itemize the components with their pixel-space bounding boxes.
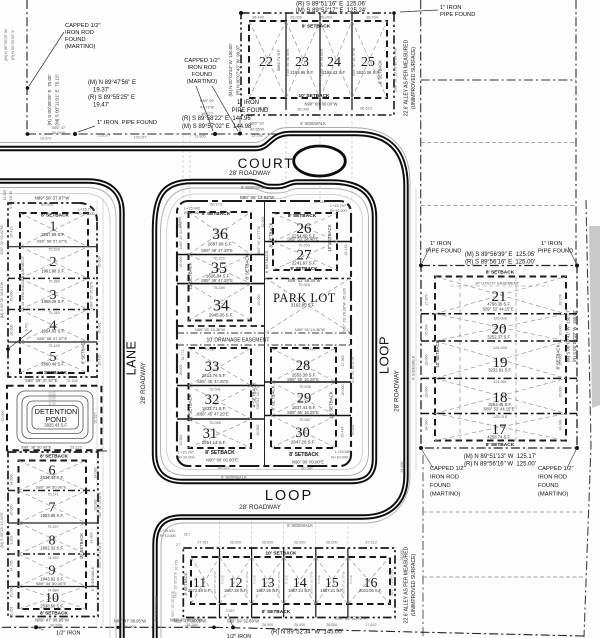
svg-text:26.000: 26.000 bbox=[179, 365, 183, 376]
svg-text:3232.91 S.F.: 3232.91 S.F. bbox=[488, 367, 512, 372]
svg-text:10' SETBACK: 10' SETBACK bbox=[329, 391, 334, 419]
svg-text:(R) N 00°00'00" E: (R) N 00°00'00" E bbox=[11, 30, 15, 60]
svg-text:L+15.641: L+15.641 bbox=[160, 529, 175, 533]
svg-text:124.943: 124.943 bbox=[493, 346, 507, 350]
svg-text:8' SETBACK: 8' SETBACK bbox=[269, 222, 274, 247]
svg-text:26.000: 26.000 bbox=[262, 623, 273, 627]
svg-text:2198.43 S.F.: 2198.43 S.F. bbox=[322, 70, 346, 75]
svg-text:S00° 02' 00.62"W: S00° 02' 00.62"W bbox=[0, 225, 4, 255]
svg-text:28' ROADWAY: 28' ROADWAY bbox=[239, 504, 282, 511]
svg-text:75.157: 75.157 bbox=[47, 525, 58, 529]
svg-text:25.429: 25.429 bbox=[10, 227, 14, 238]
svg-text:(M) S 89°56'39" E 125.05': (M) S 89°56'39" E 125.05' bbox=[465, 252, 536, 258]
svg-text:41.71'W: 41.71'W bbox=[200, 106, 214, 110]
svg-text:36: 36 bbox=[212, 226, 228, 243]
svg-text:L+15.942: L+15.942 bbox=[184, 207, 200, 211]
svg-text:36.794: 36.794 bbox=[366, 16, 378, 20]
svg-text:8' SETBACK: 8' SETBACK bbox=[40, 454, 68, 459]
svg-text:71.619: 71.619 bbox=[253, 575, 257, 585]
svg-text:26.000: 26.000 bbox=[98, 257, 102, 268]
svg-text:N89° 55' 15.36"W: N89° 55' 15.36"W bbox=[195, 328, 225, 332]
svg-text:9.203: 9.203 bbox=[10, 536, 14, 545]
svg-text:S00° 07' 20.70"W: S00° 07' 20.70"W bbox=[352, 47, 356, 76]
svg-text:2620.06 S.F.: 2620.06 S.F. bbox=[356, 70, 380, 75]
svg-text:74.880: 74.880 bbox=[47, 589, 58, 593]
svg-text:27.411: 27.411 bbox=[197, 541, 208, 545]
svg-text:N89° 35' 35.52"E: N89° 35' 35.52"E bbox=[90, 281, 94, 309]
svg-text:8' SETBACK: 8' SETBACK bbox=[205, 450, 235, 456]
svg-text:3252.37 S.F.: 3252.37 S.F. bbox=[487, 334, 511, 339]
svg-text:26.000: 26.000 bbox=[10, 587, 14, 598]
svg-text:LOOP: LOOP bbox=[377, 336, 392, 374]
svg-text:65.656: 65.656 bbox=[41, 201, 53, 206]
svg-text:19.905: 19.905 bbox=[195, 135, 206, 139]
svg-text:10' SETBACK: 10' SETBACK bbox=[435, 340, 440, 368]
svg-text:1867.24 S.F.: 1867.24 S.F. bbox=[288, 588, 311, 593]
svg-text:IRON ROD: IRON ROD bbox=[188, 65, 217, 71]
svg-text:N89° 35' 35.52"E: N89° 35' 35.52"E bbox=[98, 491, 102, 518]
svg-text:(R) S 89°58'22" E 144.96': (R) S 89°58'22" E 144.96' bbox=[182, 116, 252, 122]
svg-text:125.077: 125.077 bbox=[134, 136, 147, 140]
svg-text:1" IRON: 1" IRON bbox=[541, 241, 562, 247]
svg-text:10' SETBACK: 10' SETBACK bbox=[188, 394, 193, 422]
svg-text:1" IRON: 1" IRON bbox=[237, 100, 259, 106]
svg-text:S00°07' 20.70"W: S00°07' 20.70"W bbox=[390, 569, 394, 595]
svg-text:S00°07' 20.70"W: S00°07' 20.70"W bbox=[213, 571, 217, 594]
svg-text:75.128: 75.128 bbox=[48, 344, 59, 348]
svg-text:N89° 47' 08.95"W: N89° 47' 08.95"W bbox=[174, 619, 206, 624]
svg-text:2613.76 S.F.: 2613.76 S.F. bbox=[202, 373, 226, 378]
svg-text:L+15.773: L+15.773 bbox=[78, 208, 94, 212]
svg-text:S89° 47': S89° 47' bbox=[52, 126, 66, 130]
svg-text:N89° 56' 14.63"W: N89° 56' 14.63"W bbox=[240, 195, 276, 200]
svg-text:N89° 58' 37.97"W: N89° 58' 37.97"W bbox=[35, 195, 71, 200]
svg-text:34.000: 34.000 bbox=[93, 468, 97, 479]
svg-text:14.795: 14.795 bbox=[10, 561, 14, 572]
svg-text:2538.50 S.F.: 2538.50 S.F. bbox=[40, 604, 64, 609]
svg-text:(MARTINO): (MARTINO) bbox=[430, 492, 461, 498]
svg-text:10' SETBACK: 10' SETBACK bbox=[299, 93, 331, 99]
svg-text:60.173: 60.173 bbox=[210, 203, 222, 207]
svg-text:15.192: 15.192 bbox=[251, 134, 263, 138]
svg-text:20.000: 20.000 bbox=[124, 625, 136, 629]
svg-text:5' SIDEWALK: 5' SIDEWALK bbox=[300, 121, 326, 126]
svg-text:S89° 59' 52.89"W: S89° 59' 52.89"W bbox=[227, 619, 259, 624]
svg-text:3925.43 S.F.: 3925.43 S.F. bbox=[44, 423, 68, 428]
svg-text:21.50: 21.50 bbox=[49, 402, 56, 406]
svg-text:(M) S 00°00'41" W 150.17': (M) S 00°00'41" W 150.17' bbox=[566, 309, 571, 362]
svg-text:N30° 33': N30° 33' bbox=[250, 122, 265, 126]
svg-text:2031.06 S.F.: 2031.06 S.F. bbox=[359, 588, 382, 593]
svg-text:40.582: 40.582 bbox=[179, 435, 183, 446]
svg-text:26.000: 26.000 bbox=[10, 291, 14, 302]
svg-text:70.501: 70.501 bbox=[209, 388, 221, 392]
svg-text:(UNIMPROVED SURFACE): (UNIMPROVED SURFACE) bbox=[411, 554, 417, 617]
svg-text:3162.80 S.F.: 3162.80 S.F. bbox=[291, 303, 315, 308]
svg-text:N00° 00' 00.00"E: N00° 00' 00.00"E bbox=[320, 48, 324, 76]
svg-text:8' SETBACK: 8' SETBACK bbox=[262, 609, 291, 615]
svg-text:PIPE FOUND: PIPE FOUND bbox=[538, 249, 573, 255]
svg-text:28' ROADWAY: 28' ROADWAY bbox=[140, 361, 147, 404]
svg-text:FOUND: FOUND bbox=[192, 72, 213, 78]
svg-text:2.7: 2.7 bbox=[176, 543, 181, 547]
svg-text:4' SIDEWALK: 4' SIDEWALK bbox=[411, 355, 416, 380]
svg-text:1954.83 S.F.: 1954.83 S.F. bbox=[41, 329, 65, 334]
svg-text:1958.28 S.F.: 1958.28 S.F. bbox=[41, 299, 65, 304]
svg-text:S89° 58' 57.97"E: S89° 58' 57.97"E bbox=[37, 239, 68, 244]
svg-text:N00° 23' 35.52"E: N00° 23' 35.52"E bbox=[171, 590, 175, 617]
svg-text:CAPPED 1/2": CAPPED 1/2" bbox=[430, 466, 466, 472]
svg-text:19.477: 19.477 bbox=[201, 112, 213, 116]
svg-text:1867.21 S.F.: 1867.21 S.F. bbox=[320, 588, 343, 593]
svg-text:22.6' ALLEY AS PER MEASURED: 22.6' ALLEY AS PER MEASURED bbox=[404, 39, 410, 116]
svg-text:R+13.000: R+13.000 bbox=[160, 534, 176, 538]
svg-text:75.289: 75.289 bbox=[213, 286, 225, 290]
svg-text:S89° 49' 47.29"E: S89° 49' 47.29"E bbox=[201, 278, 233, 283]
svg-text:2660.46 S.F.: 2660.46 S.F. bbox=[41, 361, 65, 366]
svg-text:26.001: 26.001 bbox=[98, 323, 102, 334]
svg-text:PIPE FOUND: PIPE FOUND bbox=[232, 108, 269, 114]
svg-text:R+10.000: R+10.000 bbox=[331, 456, 348, 460]
svg-text:S89° 58' 37.97"E: S89° 58' 37.97"E bbox=[37, 336, 68, 341]
svg-text:(M) N 89°51'13" W 125.17': (M) N 89°51'13" W 125.17' bbox=[464, 454, 537, 460]
svg-text:R+17.900: R+17.900 bbox=[184, 211, 201, 215]
svg-text:26.000: 26.000 bbox=[326, 541, 338, 545]
svg-text:24.000: 24.000 bbox=[90, 533, 94, 544]
svg-text:25.123: 25.123 bbox=[70, 446, 82, 450]
svg-text:26.000: 26.000 bbox=[290, 16, 302, 20]
svg-text:26.000: 26.000 bbox=[10, 505, 14, 516]
svg-text:2534.44 S.F.: 2534.44 S.F. bbox=[40, 475, 64, 480]
svg-text:FOUND: FOUND bbox=[538, 483, 559, 489]
svg-text:125.018: 125.018 bbox=[493, 415, 507, 419]
svg-text:2847.26 S.F.: 2847.26 S.F. bbox=[291, 440, 315, 445]
svg-text:2241.67 S.F.: 2241.67 S.F. bbox=[292, 261, 316, 266]
svg-text:R+10.000: R+10.000 bbox=[178, 456, 195, 460]
svg-text:1802.32 S.F.: 1802.32 S.F. bbox=[40, 546, 64, 551]
svg-text:26.000: 26.000 bbox=[230, 541, 242, 545]
svg-text:19.37': 19.37' bbox=[93, 88, 109, 94]
svg-text:26.7: 26.7 bbox=[184, 533, 191, 537]
svg-text:(M) S 00°06' 39.63"W: (M) S 00°06' 39.63"W bbox=[0, 281, 4, 318]
svg-text:1" IRON PIPE FOUND: 1" IRON PIPE FOUND bbox=[97, 120, 157, 126]
svg-text:(M) N 00°05'29" W: (M) N 00°05'29" W bbox=[4, 29, 8, 61]
svg-text:5' SIDEWALK: 5' SIDEWALK bbox=[90, 566, 95, 591]
svg-text:35.772: 35.772 bbox=[181, 350, 185, 361]
svg-text:CAPPED 1/2": CAPPED 1/2" bbox=[538, 466, 574, 472]
svg-text:N00° 00' 00.00"E: N00° 00' 00.00"E bbox=[286, 48, 290, 76]
svg-text:N00° 25' 44.34"E: N00° 25' 44.34"E bbox=[98, 541, 102, 568]
svg-text:42.95'W: 42.95'W bbox=[250, 128, 264, 132]
svg-text:8' SETBACK: 8' SETBACK bbox=[486, 270, 515, 276]
svg-text:26.000: 26.000 bbox=[425, 355, 429, 366]
svg-text:70.253: 70.253 bbox=[298, 243, 310, 247]
svg-text:26.000: 26.000 bbox=[257, 295, 261, 306]
svg-text:23: 23 bbox=[295, 55, 309, 70]
svg-text:40.582: 40.582 bbox=[256, 425, 260, 436]
svg-text:S00°07' 20.70"W: S00°07' 20.70"W bbox=[309, 571, 313, 594]
svg-text:8' SETBACK: 8' SETBACK bbox=[39, 370, 67, 375]
svg-text:70.326: 70.326 bbox=[298, 283, 310, 287]
svg-text:26.000: 26.000 bbox=[559, 387, 563, 398]
svg-text:26.000: 26.000 bbox=[559, 355, 563, 366]
svg-text:74.952: 74.952 bbox=[47, 556, 58, 560]
svg-text:(MARTINO): (MARTINO) bbox=[538, 492, 569, 498]
svg-text:19.47': 19.47' bbox=[93, 103, 109, 109]
svg-text:8' SETBACK: 8' SETBACK bbox=[81, 340, 86, 364]
svg-text:34.000: 34.000 bbox=[559, 420, 563, 431]
svg-text:10' DRAINAGE EASEMENT: 10' DRAINAGE EASEMENT bbox=[207, 338, 270, 344]
svg-text:N89° 09': N89° 09' bbox=[200, 99, 215, 103]
svg-text:75.389: 75.389 bbox=[48, 280, 59, 284]
svg-text:(R) N 89°52'34" W 145.00': (R) N 89°52'34" W 145.00' bbox=[271, 630, 343, 636]
svg-text:70.068: 70.068 bbox=[209, 421, 221, 425]
svg-text:10' DRAINAGE EASEMENT: 10' DRAINAGE EASEMENT bbox=[20, 255, 25, 306]
svg-text:N90° 00' 00.00"E: N90° 00' 00.00"E bbox=[292, 460, 324, 465]
svg-text:COURT: COURT bbox=[238, 156, 295, 171]
svg-text:75.108: 75.108 bbox=[66, 379, 78, 383]
svg-text:N90° 00' 00.00"E: N90° 00' 00.00"E bbox=[206, 458, 238, 463]
svg-text:(MARTINO): (MARTINO) bbox=[187, 79, 218, 85]
svg-text:32.062: 32.062 bbox=[261, 217, 265, 228]
svg-text:1" IRON: 1" IRON bbox=[430, 241, 451, 247]
svg-text:1" IRON: 1" IRON bbox=[440, 5, 461, 11]
svg-text:8' SETBACK: 8' SETBACK bbox=[41, 213, 69, 218]
svg-text:34.000: 34.000 bbox=[400, 462, 404, 473]
svg-text:N89° 47' 08.95"W: N89° 47' 08.95"W bbox=[114, 619, 146, 624]
svg-text:(M) N 00°03'43" W 100.00': (M) N 00°03'43" W 100.00' bbox=[228, 43, 233, 96]
svg-text:2854.14 S.F.: 2854.14 S.F. bbox=[202, 440, 226, 445]
svg-text:1867.28 S.F.: 1867.28 S.F. bbox=[224, 588, 247, 593]
svg-text:8' SETBACK: 8' SETBACK bbox=[378, 60, 383, 84]
svg-text:S89° 45' 47.29"E: S89° 45' 47.29"E bbox=[197, 412, 229, 417]
svg-text:22: 22 bbox=[259, 55, 273, 70]
svg-text:70.587: 70.587 bbox=[299, 418, 311, 422]
svg-text:S89° 52' 44.15"E: S89° 52' 44.15"E bbox=[483, 307, 514, 312]
svg-text:19.373: 19.373 bbox=[40, 137, 51, 141]
svg-text:(R) S 89°51'16" E 125.06': (R) S 89°51'16" E 125.06' bbox=[296, 2, 366, 8]
svg-text:56.613: 56.613 bbox=[360, 107, 372, 111]
svg-text:71.619: 71.619 bbox=[349, 575, 353, 585]
svg-text:R+10.000: R+10.000 bbox=[330, 209, 347, 213]
svg-text:75.349: 75.349 bbox=[48, 311, 59, 315]
svg-text:26.000: 26.000 bbox=[425, 325, 429, 336]
svg-text:26.000: 26.000 bbox=[425, 387, 429, 398]
svg-text:25: 25 bbox=[361, 55, 375, 70]
svg-text:3.357: 3.357 bbox=[226, 609, 235, 613]
svg-text:S89° 34' 50.00"E: S89° 34' 50.00"E bbox=[36, 581, 67, 586]
svg-text:S89° 55' 16.25"E: S89° 55' 16.25"E bbox=[287, 377, 319, 382]
svg-text:28' ROADWAY: 28' ROADWAY bbox=[229, 170, 272, 177]
svg-text:S89° 58' 37.97"E: S89° 58' 37.97"E bbox=[25, 378, 58, 383]
svg-text:CAPPED 1/2": CAPPED 1/2" bbox=[65, 23, 101, 29]
svg-text:26.000: 26.000 bbox=[294, 541, 306, 545]
svg-text:(R) N 00°07'43" W 99.97': (R) N 00°07'43" W 99.97' bbox=[236, 45, 241, 95]
svg-text:2887.08 S.F.: 2887.08 S.F. bbox=[208, 242, 232, 247]
svg-text:60.621: 60.621 bbox=[218, 466, 230, 470]
svg-text:(M) S 89°52'17" E 125.24': (M) S 89°52'17" E 125.24' bbox=[296, 8, 367, 14]
svg-text:34.000: 34.000 bbox=[10, 475, 14, 486]
svg-text:2867.55 S.F.: 2867.55 S.F. bbox=[41, 232, 65, 237]
svg-text:8' SETBACK: 8' SETBACK bbox=[289, 452, 319, 458]
svg-text:S89° 53' 34.48"E: S89° 53' 34.48"E bbox=[287, 236, 319, 241]
svg-text:S00° 04' 12.77"W: S00° 04' 12.77"W bbox=[257, 225, 261, 254]
svg-text:26.000: 26.000 bbox=[297, 108, 309, 112]
svg-text:4258.74 S.F.: 4258.74 S.F. bbox=[487, 434, 511, 439]
svg-text:52.000: 52.000 bbox=[1, 411, 5, 422]
svg-text:S00°04' 12.7"W: S00°04' 12.7"W bbox=[256, 384, 260, 410]
svg-text:S89° 49' 47.29"E: S89° 49' 47.29"E bbox=[201, 248, 233, 253]
svg-text:(M) S 89°57'02" E 144.98': (M) S 89°57'02" E 144.98' bbox=[182, 124, 253, 130]
svg-text:11.005: 11.005 bbox=[3, 190, 7, 201]
svg-text:75.529: 75.529 bbox=[48, 248, 59, 252]
svg-text:8' SETBACK: 8' SETBACK bbox=[486, 442, 515, 448]
svg-text:5' SIDEWALK: 5' SIDEWALK bbox=[221, 475, 247, 480]
svg-text:(M) N 89°47'56" E: (M) N 89°47'56" E bbox=[88, 80, 136, 86]
svg-text:61.779: 61.779 bbox=[175, 560, 179, 570]
svg-text:(R) S 89°56'16" E 125.00': (R) S 89°56'16" E 125.00' bbox=[465, 260, 535, 266]
svg-text:50.646: 50.646 bbox=[50, 624, 62, 628]
svg-text:N89° 55' 15.36"W: N89° 55' 15.36"W bbox=[295, 328, 325, 332]
svg-text:FOUND: FOUND bbox=[430, 483, 451, 489]
svg-text:8' SETBACK: 8' SETBACK bbox=[40, 610, 68, 615]
svg-text:10' SETBACK: 10' SETBACK bbox=[188, 262, 193, 290]
svg-text:26.000: 26.000 bbox=[93, 500, 97, 511]
svg-text:75.141: 75.141 bbox=[47, 493, 58, 497]
svg-text:22.448: 22.448 bbox=[344, 245, 348, 256]
svg-text:5' SIDEWALK: 5' SIDEWALK bbox=[154, 596, 159, 621]
svg-text:8' SETBACK: 8' SETBACK bbox=[245, 254, 250, 279]
svg-text:(R) N 89°56'16" W 125.00': (R) N 89°56'16" W 125.00' bbox=[464, 462, 536, 468]
svg-text:60.547: 60.547 bbox=[301, 467, 313, 471]
svg-text:(MARTINO): (MARTINO) bbox=[65, 44, 96, 50]
svg-text:1/2" IRON: 1/2" IRON bbox=[56, 631, 80, 637]
svg-text:1953.88 S.F.: 1953.88 S.F. bbox=[40, 513, 64, 518]
svg-text:2199.95 S.F.: 2199.95 S.F. bbox=[290, 70, 314, 75]
svg-text:71.619: 71.619 bbox=[285, 575, 289, 585]
svg-text:2945.05 S.F.: 2945.05 S.F. bbox=[209, 313, 233, 318]
svg-text:31.054: 31.054 bbox=[178, 217, 182, 228]
svg-text:10' SETBACK: 10' SETBACK bbox=[79, 533, 84, 559]
svg-text:26.000: 26.000 bbox=[10, 325, 14, 336]
svg-text:30.494: 30.494 bbox=[341, 427, 345, 438]
svg-text:(R) S 89°55'25" E: (R) S 89°55'25" E bbox=[88, 95, 135, 101]
svg-text:L+15.695: L+15.695 bbox=[335, 450, 351, 454]
svg-text:70.222: 70.222 bbox=[213, 257, 225, 261]
svg-text:LOOP: LOOP bbox=[265, 488, 313, 504]
svg-text:S00°07' 20.70"W: S00°07' 20.70"W bbox=[277, 571, 281, 594]
svg-text:26.000: 26.000 bbox=[320, 16, 332, 20]
svg-text:2672.19 S.F.: 2672.19 S.F. bbox=[188, 588, 211, 593]
svg-text:28.178: 28.178 bbox=[559, 295, 563, 306]
svg-text:1/2" IRON: 1/2" IRON bbox=[227, 634, 251, 638]
svg-text:26.000: 26.000 bbox=[262, 541, 274, 545]
svg-text:8' SETBACK: 8' SETBACK bbox=[183, 572, 188, 595]
svg-text:S89° 38' 50.00"E: S89° 38' 50.00"E bbox=[21, 445, 52, 450]
svg-text:60.169: 60.169 bbox=[314, 200, 326, 204]
svg-text:S00° 07' 20.70"W 64.443: S00° 07' 20.70"W 64.443 bbox=[394, 48, 398, 92]
svg-text:L+15.707: L+15.707 bbox=[330, 204, 346, 208]
svg-text:10' SETBACK: 10' SETBACK bbox=[266, 551, 298, 557]
svg-text:5' SIDEWALK: 5' SIDEWALK bbox=[287, 523, 313, 528]
svg-text:S00°07' 20.70"W: S00°07' 20.70"W bbox=[341, 571, 345, 594]
svg-text:71.619: 71.619 bbox=[317, 575, 321, 585]
svg-text:IRON ROD: IRON ROD bbox=[430, 475, 459, 481]
svg-text:37.989: 37.989 bbox=[341, 356, 345, 367]
svg-text:34.344: 34.344 bbox=[184, 625, 196, 629]
svg-text:S89° 45' 47.29"E: S89° 45' 47.29"E bbox=[197, 379, 229, 384]
svg-text:34.000: 34.000 bbox=[425, 420, 429, 431]
svg-text:28' ROADWAY: 28' ROADWAY bbox=[394, 369, 401, 412]
svg-text:(R) S 00°03'39" W 150.00': (R) S 00°03'39" W 150.00' bbox=[572, 310, 577, 362]
svg-text:35.435: 35.435 bbox=[98, 355, 102, 366]
svg-text:35.351: 35.351 bbox=[10, 607, 14, 618]
svg-text:5' SIDEWALK: 5' SIDEWALK bbox=[241, 185, 267, 190]
svg-text:52.527: 52.527 bbox=[94, 413, 98, 424]
svg-text:R+17.000: R+17.000 bbox=[78, 212, 95, 216]
svg-text:PIPE FOUND: PIPE FOUND bbox=[426, 249, 461, 255]
svg-text:125.377: 125.377 bbox=[98, 134, 111, 138]
svg-text:27.875: 27.875 bbox=[425, 295, 429, 306]
svg-text:CAPPED 1/2": CAPPED 1/2" bbox=[184, 58, 220, 64]
svg-text:6.791: 6.791 bbox=[25, 323, 29, 332]
svg-text:N90° 00' 00.00"W: N90° 00' 00.00"W bbox=[304, 102, 337, 107]
svg-text:8' SETBACK: 8' SETBACK bbox=[288, 213, 317, 219]
svg-text:(M) S 00°25' 44.34"E: (M) S 00°25' 44.34"E bbox=[0, 512, 4, 548]
svg-text:26.000: 26.000 bbox=[179, 257, 183, 268]
svg-text:3062.71 S.F.: 3062.71 S.F. bbox=[276, 49, 281, 71]
svg-text:26.000: 26.000 bbox=[559, 325, 563, 336]
svg-text:1833.71 S.F.: 1833.71 S.F. bbox=[202, 406, 226, 411]
svg-text:26.000: 26.000 bbox=[294, 623, 305, 627]
svg-text:S89° 59' 52.89"W: S89° 59' 52.89"W bbox=[335, 616, 367, 621]
svg-text:36.449: 36.449 bbox=[252, 16, 264, 20]
svg-text:PIPE FOUND: PIPE FOUND bbox=[440, 12, 475, 18]
svg-text:S07° 23' 26.30"W 45.326: S07° 23' 26.30"W 45.326 bbox=[343, 288, 347, 332]
svg-text:37.612: 37.612 bbox=[365, 541, 377, 545]
svg-text:8' SETBACK: 8' SETBACK bbox=[264, 250, 269, 273]
svg-text:S00° 03' 26.30"W: S00° 03' 26.30"W bbox=[351, 356, 355, 383]
svg-text:IRON ROD: IRON ROD bbox=[65, 30, 94, 36]
svg-text:1961.98 S.F.: 1961.98 S.F. bbox=[41, 269, 65, 274]
svg-text:(R) S 00°09'29" E 75.00': (R) S 00°09'29" E 75.00' bbox=[47, 74, 52, 125]
svg-text:26.000: 26.000 bbox=[326, 623, 337, 627]
svg-text:S 45°18' W: S 45°18' W bbox=[9, 190, 13, 209]
svg-text:S89° 34' 50.00"E: S89° 34' 50.00"E bbox=[36, 484, 67, 489]
svg-text:125.008: 125.008 bbox=[493, 316, 507, 320]
svg-text:124.981: 124.981 bbox=[493, 380, 507, 384]
svg-text:(UNIMPROVED SURFACE): (UNIMPROVED SURFACE) bbox=[411, 47, 417, 110]
svg-text:LANE: LANE bbox=[125, 341, 139, 376]
svg-text:8' SETBACK: 8' SETBACK bbox=[302, 24, 331, 30]
svg-text:N89° 47' 08.95"W: N89° 47' 08.95"W bbox=[35, 618, 70, 623]
svg-text:17.612: 17.612 bbox=[366, 623, 377, 627]
svg-text:10' UTILITY EASEMENT: 10' UTILITY EASEMENT bbox=[475, 280, 520, 285]
svg-text:55.29'W: 55.29'W bbox=[52, 131, 66, 135]
svg-text:10' SETBACK: 10' SETBACK bbox=[327, 224, 332, 252]
svg-text:(M) S 00°11'01" E 75.15': (M) S 00°11'01" E 75.15' bbox=[55, 74, 60, 125]
svg-text:1867.26 S.F.: 1867.26 S.F. bbox=[256, 588, 279, 593]
svg-text:IRON ROD: IRON ROD bbox=[538, 475, 567, 481]
svg-text:71.619: 71.619 bbox=[221, 575, 225, 585]
svg-text:22.6' ALLEY AS PER MEASURED: 22.6' ALLEY AS PER MEASURED bbox=[404, 546, 410, 623]
svg-text:45.326: 45.326 bbox=[351, 425, 355, 435]
svg-text:S89° 55' 16.25"E: S89° 55' 16.25"E bbox=[287, 410, 319, 415]
svg-text:L+15.797: L+15.797 bbox=[178, 451, 194, 455]
svg-text:24: 24 bbox=[327, 55, 341, 70]
svg-text:8' SETBACK: 8' SETBACK bbox=[202, 211, 231, 217]
svg-text:S00°07' 20.70"W: S00°07' 20.70"W bbox=[245, 571, 249, 594]
